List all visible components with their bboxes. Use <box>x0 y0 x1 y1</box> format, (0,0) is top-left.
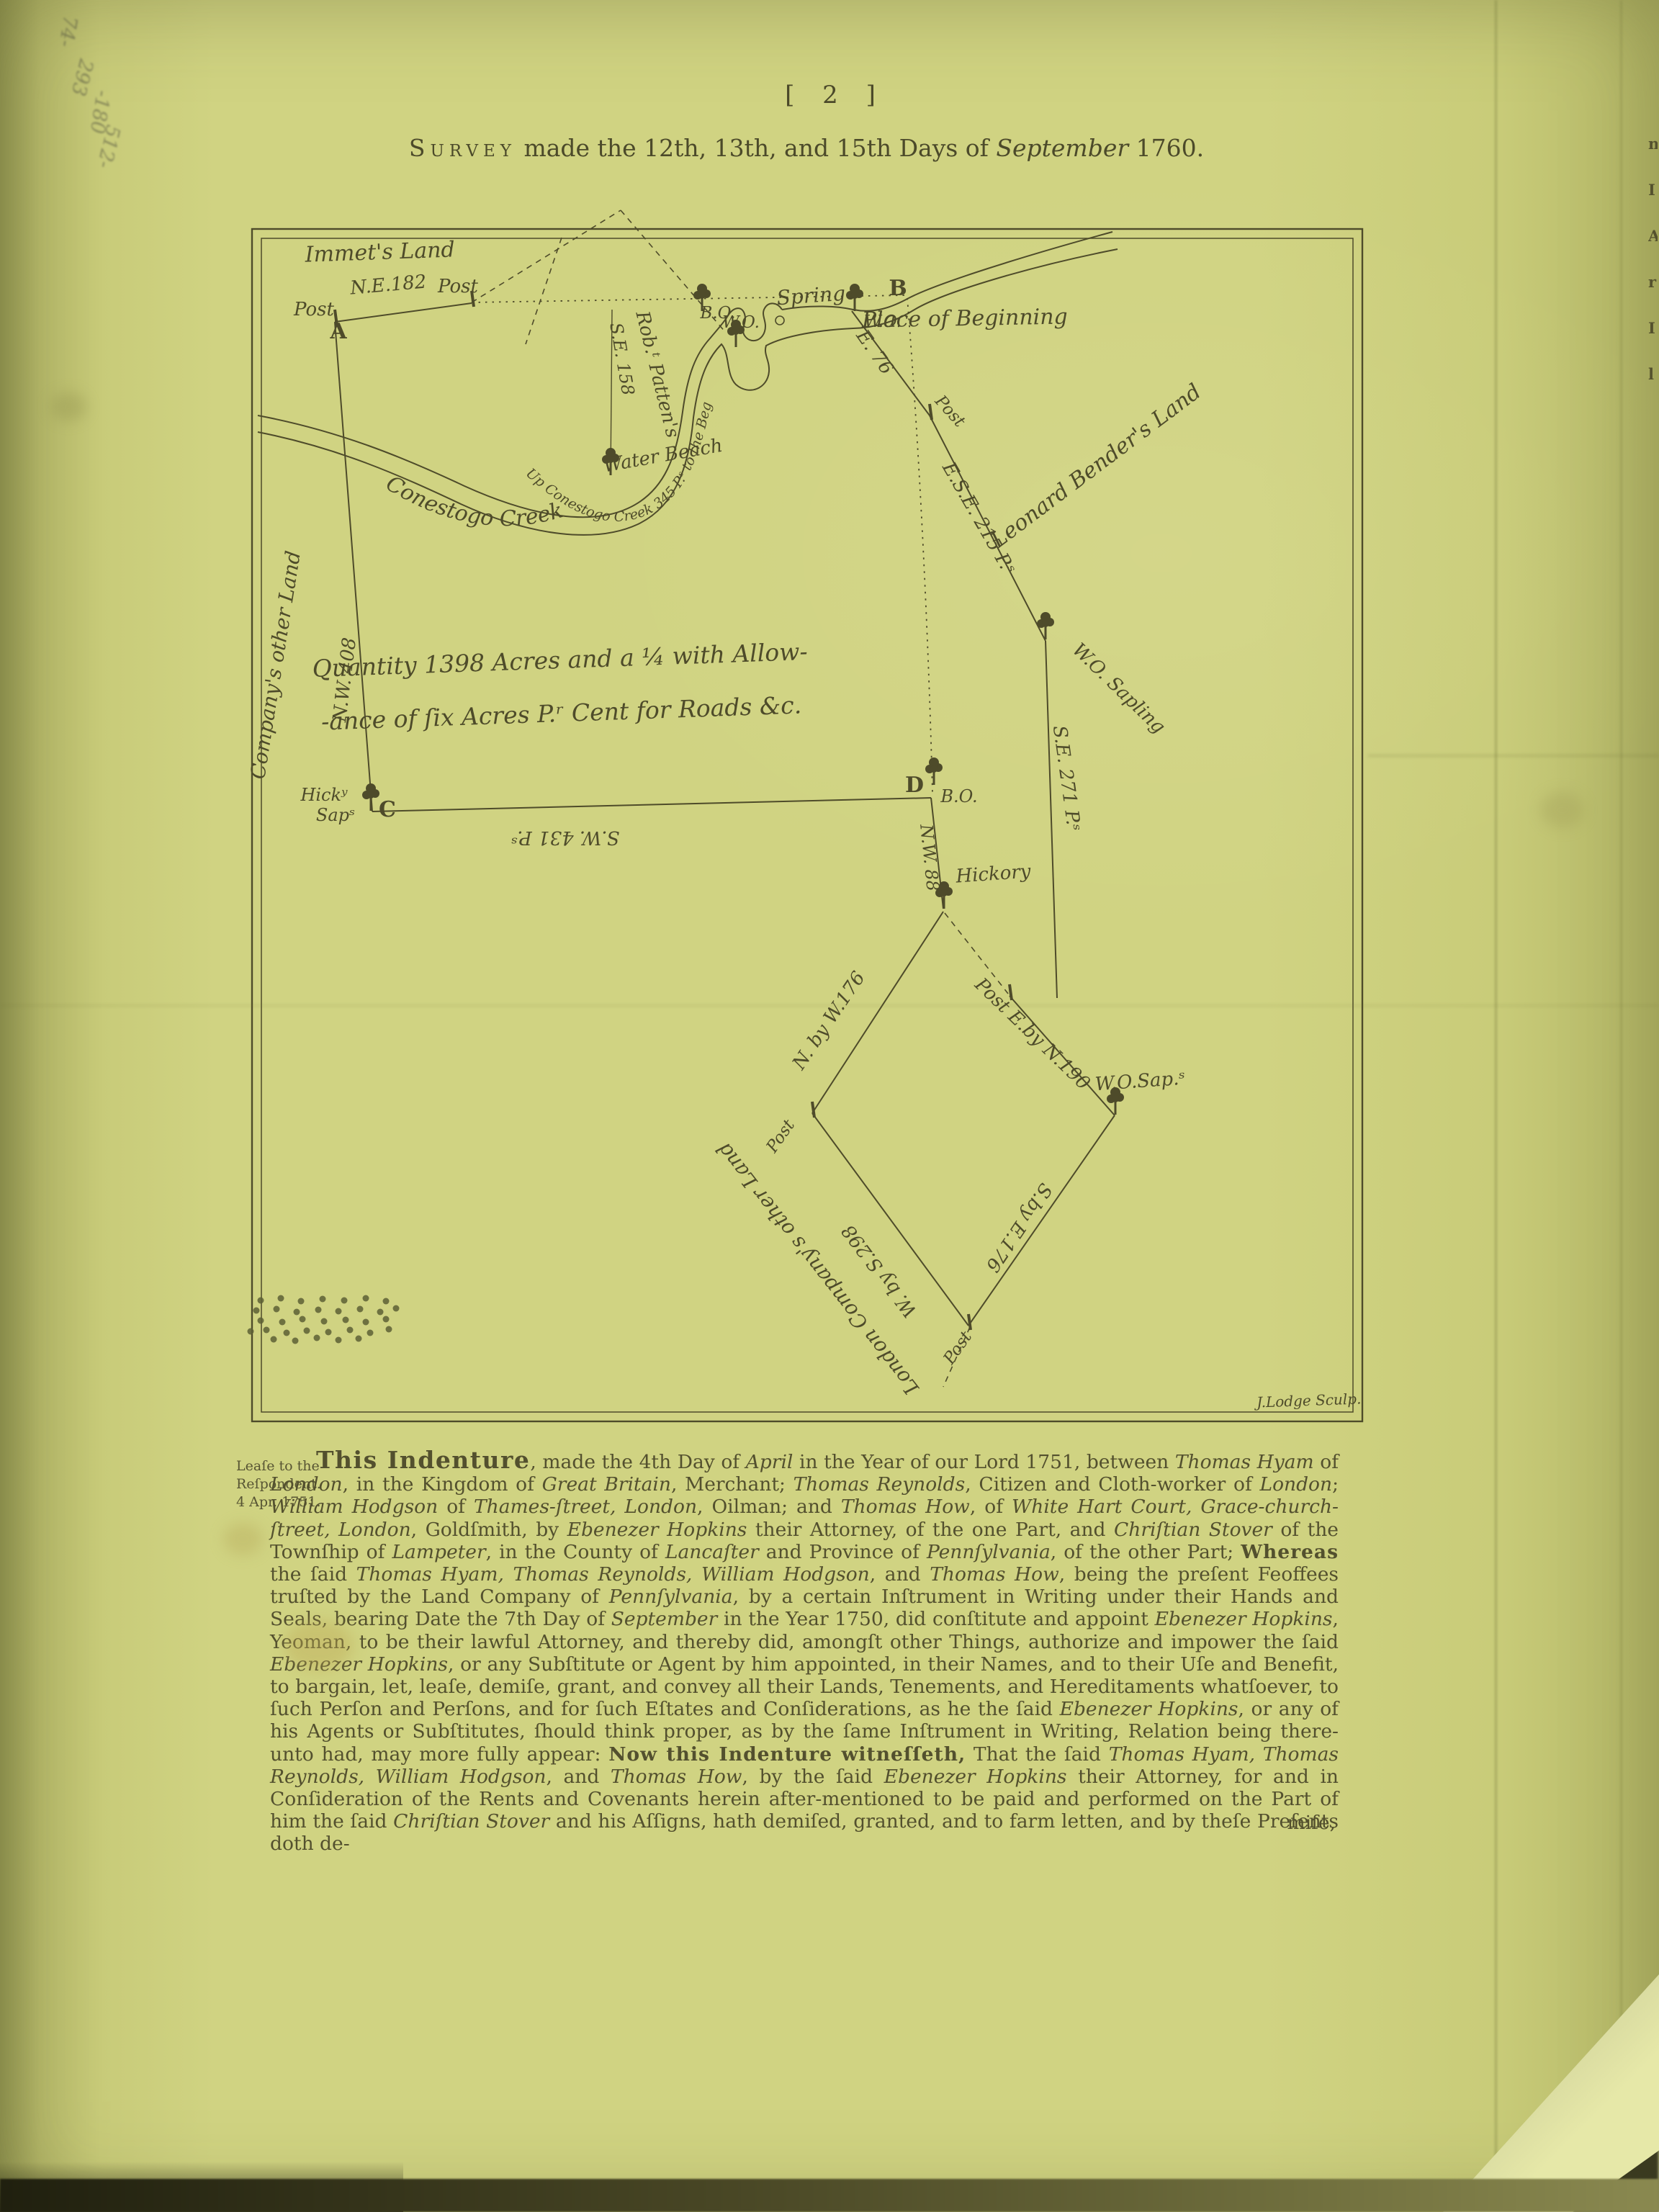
tree-symbol <box>1037 612 1054 639</box>
perforation-dot <box>258 1298 264 1304</box>
perforation-dot <box>264 1327 270 1334</box>
map-label: Hickory <box>954 860 1031 887</box>
indenture-segment: Ebenezer Hopkins <box>1060 1698 1238 1720</box>
indenture-segment: Whereas <box>1241 1541 1339 1563</box>
map-label: S.E. 271 P.ˢ <box>1048 724 1084 833</box>
survey-boundary-lines <box>335 210 1115 1387</box>
indenture-segment: Thomas Hyam, Thomas Reynolds, William Ho… <box>356 1563 870 1586</box>
perforation-dot <box>284 1330 290 1336</box>
indenture-segment: Thomas How <box>930 1563 1059 1586</box>
perforation-dot <box>315 1307 322 1313</box>
paper-stain <box>50 392 86 421</box>
page-title: Survey made the 12th, 13th, and 15th Day… <box>302 134 1310 162</box>
indenture-segment: Ebenezer Hopkins <box>1155 1608 1333 1630</box>
indenture-segment: Ebenezer Hopkins <box>567 1519 747 1541</box>
perforation-dot <box>298 1298 305 1305</box>
indenture-segment: Thomas How <box>611 1766 742 1788</box>
indenture-segment: September <box>611 1608 718 1630</box>
map-label: Hickʸ <box>300 785 348 805</box>
perforation-dot <box>278 1295 284 1302</box>
perforation-dot <box>294 1309 300 1316</box>
indenture-segment: Thomas Hyam <box>1175 1451 1314 1473</box>
map-label: B.O. <box>940 786 977 806</box>
map-label: N.E.182 <box>349 271 427 299</box>
indenture-segment: , Citizen and Cloth-worker of <box>965 1473 1259 1496</box>
indenture-segment: London <box>270 1473 343 1496</box>
perforation-dot <box>357 1306 364 1313</box>
perforation-dot <box>386 1326 392 1333</box>
perforation-dot <box>347 1327 354 1334</box>
page-number: [ 2 ] <box>749 81 922 109</box>
perforation-dot <box>304 1328 310 1334</box>
perforation-dot <box>274 1306 280 1313</box>
indenture-segment: , of the other Part; <box>1051 1541 1241 1563</box>
edge-letter-fragment: n <box>1648 121 1658 167</box>
map-label: Post <box>940 1328 976 1369</box>
map-label: S.by E.176 <box>981 1179 1056 1275</box>
perforation-dot <box>343 1317 349 1323</box>
indenture-segment: of <box>1314 1451 1339 1473</box>
indenture-segment: of <box>438 1496 474 1518</box>
title-tail: 1760. <box>1128 134 1204 162</box>
map-label: Sapˢ <box>316 805 355 825</box>
map-label: -ance of ſix Acres P.ʳ Cent for Roads &c… <box>320 691 801 735</box>
indenture-segment: Lancaſter <box>665 1541 759 1563</box>
indenture-paragraph: This Indenture, made the 4th Day of Apri… <box>270 1449 1339 1856</box>
indenture-segment: , Oilman; and <box>697 1496 841 1518</box>
indenture-segment: , made the 4th Day of <box>530 1451 745 1473</box>
map-label: N.W. 88 <box>916 822 943 892</box>
edge-letter-fragment: A <box>1648 213 1658 259</box>
indenture-segment: in the Year 1750, did conſtitute and app… <box>717 1608 1154 1630</box>
indenture-segment: Thomas Reynolds <box>793 1473 966 1496</box>
perforation-dot <box>271 1336 277 1343</box>
perforation-dot <box>336 1337 342 1344</box>
indenture-segment: ; <box>1332 1473 1339 1496</box>
perforation-dot <box>325 1329 332 1336</box>
map-label: Post E.by N.190 <box>970 974 1094 1094</box>
indenture-segment: the ſaid <box>270 1563 356 1586</box>
indenture-segment: , Goldſmith, by <box>411 1519 567 1541</box>
perforation-dot <box>393 1305 400 1312</box>
map-label: Post <box>930 392 969 431</box>
perforation-dot <box>258 1318 264 1324</box>
indenture-segment: Ebenezer Hopkins <box>884 1766 1067 1788</box>
indenture-segment: Great Britain <box>542 1473 671 1496</box>
catchword: miſe, <box>270 1812 1336 1834</box>
tree-symbol <box>846 284 863 311</box>
map-label: Water Beach <box>601 435 724 477</box>
tree-symbol <box>925 757 943 785</box>
indenture-segment: , in the County of <box>486 1541 665 1563</box>
map-label: Immet's Land <box>304 237 455 267</box>
indenture-segment: and Province of <box>759 1541 927 1563</box>
map-label: N. by W.176 <box>788 968 869 1074</box>
edge-letter-fragment: I <box>1648 167 1658 213</box>
perforation-dot <box>248 1328 254 1335</box>
post-mark <box>812 1102 814 1118</box>
horizontal-crease <box>0 1004 1659 1007</box>
perforation-dot <box>292 1338 299 1344</box>
perforation-dot <box>363 1319 369 1326</box>
fold-crease <box>1620 0 1622 2212</box>
scanned-document-page: Immet's LandPostAN.E.182PostB.O.W.O.Spri… <box>0 0 1659 2212</box>
map-label: D <box>905 773 924 798</box>
indenture-segment: This Indenture <box>316 1446 530 1474</box>
map-label: Post <box>293 299 334 320</box>
title-middle: made the 12th, 13th, and 15th Days of <box>516 134 996 162</box>
indenture-segment: , in the Kingdom of <box>343 1473 542 1496</box>
perforation-dot <box>383 1298 390 1305</box>
map-label: Leonard Bender's Land <box>986 379 1206 554</box>
paper-stain <box>284 1620 353 1671</box>
map-label: J.Lodge Sculp. <box>1254 1390 1362 1411</box>
indenture-segment: in the Year of our Lord 1751, between <box>793 1451 1174 1473</box>
map-label: E. 76 <box>851 325 897 379</box>
map-labels-layer: Immet's LandPostAN.E.182PostB.O.W.O.Spri… <box>0 0 1362 1411</box>
perforation-dot <box>377 1309 384 1316</box>
edge-letter-fragment: r <box>1648 259 1658 305</box>
perforation-dot <box>320 1296 326 1303</box>
indenture-segment: Pennſylvania <box>927 1541 1051 1563</box>
indenture-segment: Lampeter <box>392 1541 485 1563</box>
map-label: S.E. 158 <box>606 321 638 397</box>
edge-letter-fragment: I <box>1648 305 1658 351</box>
indenture-segment: , of <box>970 1496 1012 1518</box>
map-label: C <box>379 797 396 822</box>
indenture-segment: William Hodgson <box>270 1496 438 1518</box>
post-mark <box>968 1314 971 1330</box>
indenture-segment: Thames-ſtreet, London <box>474 1496 697 1518</box>
indenture-segment: , by the ſaid <box>742 1766 884 1788</box>
indenture-segment: London <box>1259 1473 1332 1496</box>
perforation-dot <box>336 1308 342 1315</box>
indenture-segment: their Attorney, of the one Part, and <box>747 1519 1114 1541</box>
map-label: Place of Beginning <box>861 305 1068 333</box>
paper-stain <box>223 1523 263 1555</box>
perforation-dot <box>321 1318 328 1325</box>
edge-letter-fragment: l <box>1648 351 1658 397</box>
indenture-segment: April <box>746 1451 793 1473</box>
map-label: A <box>329 319 347 344</box>
fold-crease <box>1495 0 1497 2212</box>
paper-stain <box>1541 792 1584 828</box>
map-label: Company's other Land <box>246 549 305 781</box>
title-lead: Survey <box>409 134 516 162</box>
map-label: W.O.Sap.ˢ <box>1094 1068 1186 1096</box>
title-month: September <box>996 134 1128 162</box>
survey-plat-map: Immet's LandPostAN.E.182PostB.O.W.O.Spri… <box>0 0 1659 2212</box>
horizontal-crease <box>1368 755 1659 757</box>
perforation-dot <box>300 1316 306 1323</box>
perforation-dot <box>279 1319 286 1326</box>
tree-symbol <box>362 783 379 811</box>
facing-page-edge-text: nIArIl <box>1648 121 1658 397</box>
perforation-dot <box>367 1330 374 1336</box>
indenture-segment: , and <box>870 1563 930 1586</box>
spring-pool <box>775 316 784 325</box>
perforation-dot <box>253 1308 260 1314</box>
map-label: Rob.ᵗ Patten's <box>631 308 683 440</box>
indenture-segment: Thomas How <box>841 1496 970 1518</box>
indenture-segment: Now this Indenture witneſſeth, <box>608 1743 966 1766</box>
map-label: B <box>889 276 907 301</box>
indenture-segment: That the ſaid <box>966 1743 1108 1766</box>
map-label: S.W. 431 P.ˢ <box>511 827 620 848</box>
page-bottom-edge <box>0 2179 1659 2212</box>
indenture-segment: Pennſylvania <box>609 1586 733 1608</box>
perforation-dot <box>341 1298 348 1304</box>
map-label: London Company's other Land <box>711 1138 924 1400</box>
map-label: Quantity 1398 Acres and a ¼ with Allow- <box>312 637 808 683</box>
indenture-segment: , and <box>546 1766 610 1788</box>
perforation-dot <box>363 1295 369 1302</box>
indenture-segment: Chriſtian Stover <box>1114 1519 1272 1541</box>
map-label: W.O. Sapling <box>1068 639 1169 738</box>
perforation-dot <box>383 1316 390 1323</box>
map-label: Spring <box>776 282 846 310</box>
indenture-segment: , Merchant; <box>671 1473 793 1496</box>
perforation-dot <box>356 1336 362 1342</box>
perforation-dot <box>314 1335 320 1341</box>
map-label: Post <box>763 1116 799 1157</box>
